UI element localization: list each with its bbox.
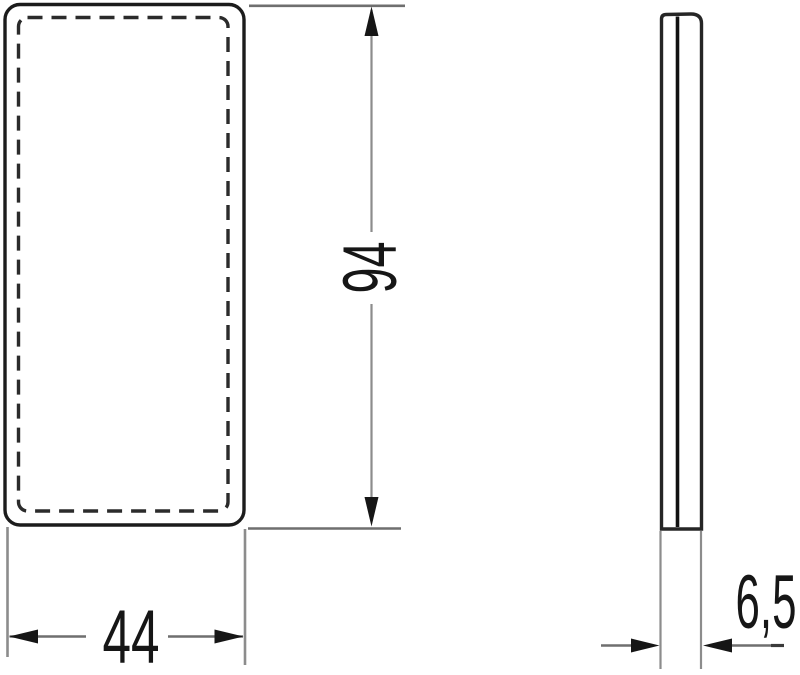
width-dimension: 44	[8, 527, 246, 675]
arrow-left-icon	[9, 630, 38, 644]
depth-dimension-label: 6,5	[736, 560, 797, 645]
arrow-down-icon	[365, 497, 379, 527]
width-dimension-label: 44	[103, 595, 160, 675]
technical-drawing-page: 94 44 6,5	[0, 0, 800, 675]
front-view-outer-outline	[5, 5, 244, 526]
reflector-technical-drawing: 94 44 6,5	[0, 0, 800, 675]
depth-dimension: 6,5	[601, 531, 797, 669]
side-view	[662, 14, 702, 529]
height-dimension: 94	[248, 6, 413, 529]
arrow-right-icon	[215, 630, 244, 644]
height-dimension-label: 94	[328, 242, 413, 294]
front-view	[5, 5, 244, 526]
side-view-outline	[662, 14, 702, 529]
arrow-up-icon	[365, 7, 379, 37]
arrow-right-icon	[631, 639, 660, 653]
arrow-left-icon	[703, 639, 732, 653]
front-view-dashed-inner-outline	[19, 18, 229, 512]
